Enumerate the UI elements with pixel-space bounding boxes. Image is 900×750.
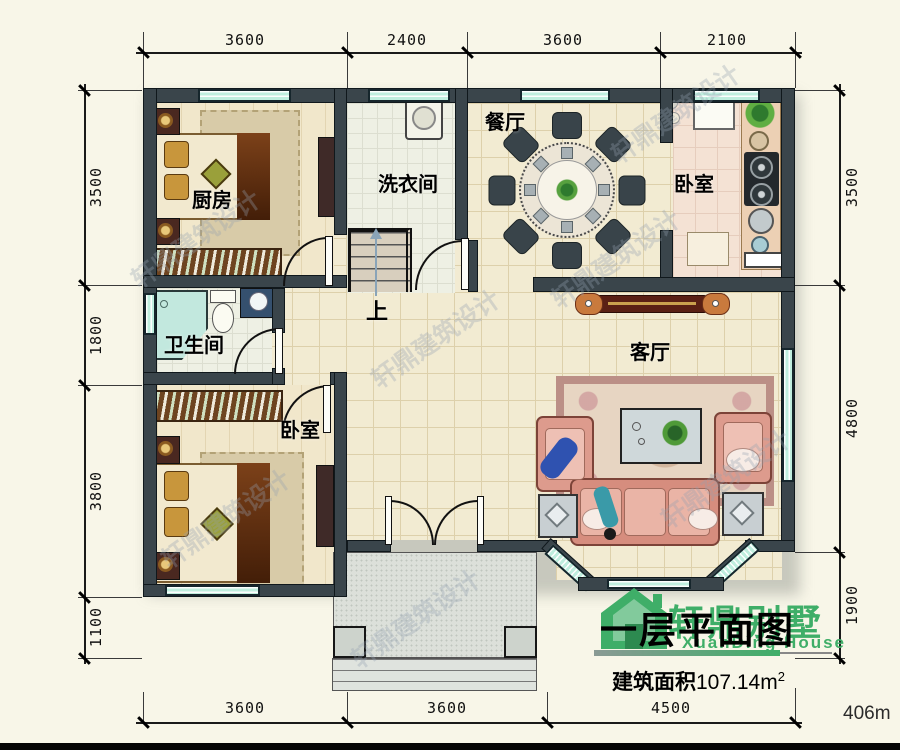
bed-pillow	[164, 174, 189, 200]
door-leaf-laundry	[461, 238, 469, 290]
wall-bedroom2-right	[334, 372, 347, 597]
coffee-table-cup	[632, 422, 641, 431]
dim-label-right: 1900	[843, 575, 861, 635]
window-living-right	[782, 348, 794, 482]
room-label-dining: 餐厅	[485, 106, 525, 135]
dim-label-top: 2400	[377, 31, 437, 49]
dim-label-top: 2100	[697, 31, 757, 49]
dim-label-left: 1100	[87, 597, 105, 657]
wall-bathroom-right-upper	[272, 288, 285, 333]
bathroom-sink	[249, 292, 268, 311]
place-setting	[598, 184, 610, 196]
dim-line-bottom	[136, 722, 802, 724]
door-leaf-bedroom1	[325, 236, 333, 286]
room-label-bathroom: 卫生间	[164, 329, 224, 358]
dim-label-bottom: 4500	[641, 699, 701, 717]
place-setting	[561, 147, 573, 159]
wall-outer-left	[143, 88, 157, 597]
window-bedroom1-top	[198, 89, 291, 102]
tv-cabinet-line	[608, 302, 696, 305]
tv-cabinet-knob	[585, 300, 592, 307]
dim-label-left: 1800	[87, 305, 105, 365]
dim-ext	[795, 32, 796, 88]
wall-bedroom1-laundry	[334, 88, 347, 235]
dim-label-top: 3600	[215, 31, 275, 49]
coffee-table-cup	[638, 438, 645, 445]
place-setting	[561, 221, 573, 233]
floor-area-value: 107.14m	[696, 671, 778, 694]
door-leaf-bathroom	[275, 328, 283, 374]
dim-label-left: 3500	[87, 157, 105, 217]
corner-note: 406m	[843, 703, 891, 725]
bed-pillow	[164, 141, 189, 168]
stairs-up-label: 上	[366, 294, 388, 326]
bottom-border-strip	[0, 743, 900, 750]
nightstand-lamp	[158, 441, 173, 456]
wall-outer-right	[781, 88, 795, 552]
room-label-bedroom-bl: 卧室	[280, 414, 320, 443]
door-leaf-bedroom2	[323, 385, 331, 433]
stairs-arrowhead	[370, 228, 382, 239]
bed-pillow	[164, 471, 189, 501]
wall-laundry-door-stub	[468, 240, 478, 292]
table-plant	[554, 177, 580, 203]
floor-plan-sheet: 厨房 洗衣间 餐厅 卧室 卫生间 卧室 客厅 上 3600 2400 3600 …	[0, 0, 900, 750]
bowl	[749, 131, 769, 151]
washing-machine-drum	[412, 106, 436, 130]
dim-label-left: 3800	[87, 461, 105, 521]
dim-label-bottom: 3600	[417, 699, 477, 717]
window-laundry-top	[368, 89, 450, 102]
entry-door-leaf-left	[385, 496, 392, 545]
place-setting	[524, 184, 536, 196]
side-table	[316, 465, 334, 547]
dim-ext	[347, 32, 348, 88]
window-dining-top	[520, 89, 610, 102]
porch-column	[504, 626, 537, 658]
floor-area-note: 建筑面积107.14m2	[612, 666, 785, 696]
stairs-direction-line	[375, 236, 377, 296]
dim-label-top: 3600	[533, 31, 593, 49]
stove-burner	[750, 183, 773, 206]
wardrobe	[150, 390, 283, 422]
dim-ext	[143, 32, 144, 88]
dim-label-right: 3500	[843, 157, 861, 217]
dining-chair	[552, 112, 582, 139]
dim-ext	[347, 692, 348, 722]
dim-ext	[795, 688, 796, 700]
shower-drain	[160, 300, 168, 308]
floor-area-label: 建筑面积	[612, 671, 696, 694]
room-label-living: 客厅	[630, 336, 670, 365]
dim-ext	[143, 692, 144, 722]
floor-area-exponent: 2	[778, 669, 785, 684]
entry-door-leaf-right	[477, 496, 484, 545]
person-head	[604, 528, 616, 540]
dim-label-right: 4800	[843, 388, 861, 448]
stove-burner	[750, 156, 773, 179]
window-bathroom-left	[144, 293, 156, 335]
dim-line-left	[84, 84, 86, 664]
plan-title: 一层平面图	[600, 600, 795, 654]
dim-line-right	[839, 84, 841, 664]
window-bedroom2-bottom	[165, 585, 260, 596]
dim-ext	[660, 32, 661, 88]
small-table	[687, 232, 729, 266]
dim-ext	[467, 32, 468, 88]
tv-cabinet-knob	[712, 300, 719, 307]
dining-chair	[619, 176, 646, 206]
dim-ext	[547, 692, 548, 722]
dim-label-bottom: 3600	[215, 699, 275, 717]
wall-laundry-dining	[455, 88, 468, 240]
dining-chair	[489, 176, 516, 206]
room-label-bedroom-tr: 卧室	[674, 168, 714, 197]
coffee-table-plant	[660, 416, 690, 450]
room-label-laundry: 洗衣间	[378, 168, 438, 197]
toilet-tank	[210, 290, 236, 303]
nightstand-lamp	[158, 113, 173, 128]
kitchen-sink	[748, 208, 774, 234]
